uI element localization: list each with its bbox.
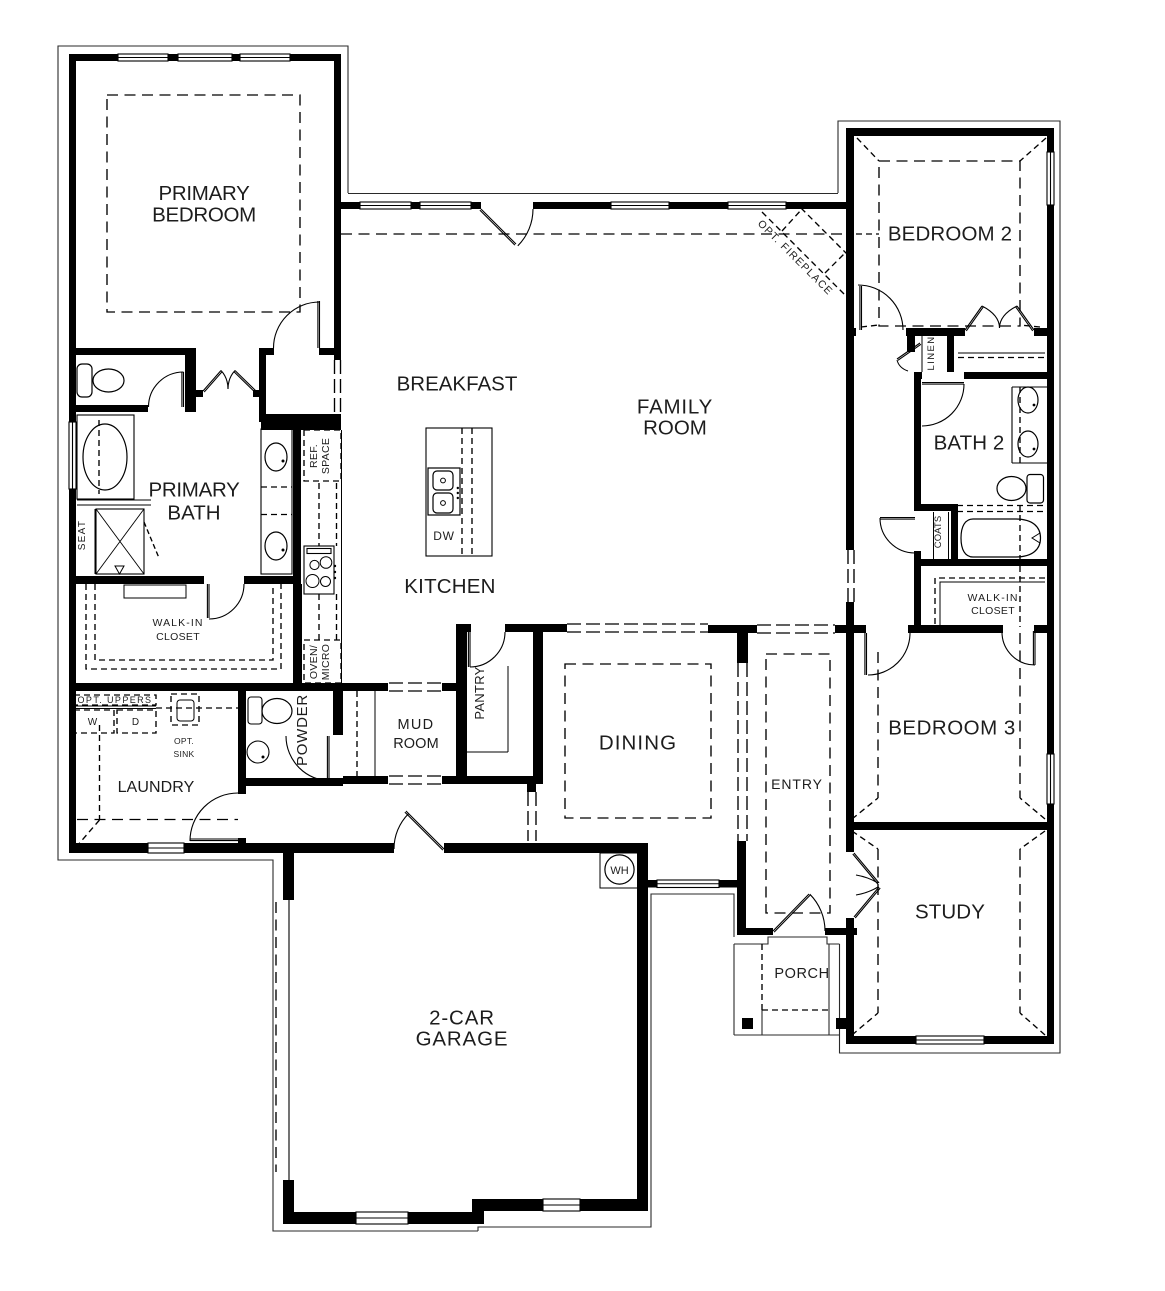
svg-text:BEDROOM: BEDROOM <box>152 204 256 227</box>
svg-text:LAUNDRY: LAUNDRY <box>118 779 195 796</box>
svg-text:PANTRY: PANTRY <box>472 666 487 719</box>
svg-text:COATS: COATS <box>933 516 944 549</box>
svg-text:GARAGE: GARAGE <box>416 1028 509 1051</box>
svg-text:OPT. UPPERS: OPT. UPPERS <box>78 695 153 705</box>
svg-text:2-CAR: 2-CAR <box>429 1007 495 1030</box>
svg-text:BEDROOM 3: BEDROOM 3 <box>888 717 1016 740</box>
svg-text:ENTRY: ENTRY <box>771 776 823 792</box>
svg-text:SPACE: SPACE <box>320 438 332 474</box>
svg-text:BATH 2: BATH 2 <box>934 432 1005 455</box>
svg-text:WALK-IN: WALK-IN <box>967 592 1018 604</box>
svg-text:LINEN: LINEN <box>926 336 937 371</box>
svg-text:WALK-IN: WALK-IN <box>152 617 203 629</box>
svg-text:D: D <box>132 717 140 728</box>
svg-text:FAMILY: FAMILY <box>637 396 713 419</box>
svg-text:W: W <box>88 717 98 728</box>
svg-text:MICRO: MICRO <box>320 644 332 681</box>
svg-text:OVEN/: OVEN/ <box>308 645 320 679</box>
svg-text:BEDROOM 2: BEDROOM 2 <box>888 223 1012 246</box>
svg-text:SINK: SINK <box>173 749 194 759</box>
svg-text:OPT.: OPT. <box>174 736 194 746</box>
svg-text:BATH: BATH <box>167 502 220 525</box>
svg-text:PORCH: PORCH <box>774 966 829 982</box>
svg-text:DINING: DINING <box>599 732 677 755</box>
svg-text:POWDER: POWDER <box>294 694 311 766</box>
svg-text:CLOSET: CLOSET <box>971 605 1015 617</box>
svg-text:MUD: MUD <box>398 717 435 733</box>
svg-text:DW: DW <box>433 529 455 543</box>
svg-text:STUDY: STUDY <box>915 901 985 924</box>
svg-text:SEAT: SEAT <box>77 520 88 551</box>
svg-text:PRIMARY: PRIMARY <box>159 182 251 205</box>
svg-text:PRIMARY: PRIMARY <box>149 479 241 502</box>
svg-text:REF.: REF. <box>308 444 320 468</box>
svg-text:BREAKFAST: BREAKFAST <box>397 373 518 396</box>
svg-text:ROOM: ROOM <box>393 736 439 752</box>
svg-text:ROOM: ROOM <box>643 417 707 440</box>
svg-text:WH: WH <box>610 865 628 877</box>
svg-text:KITCHEN: KITCHEN <box>404 575 495 598</box>
svg-text:CLOSET: CLOSET <box>156 631 200 643</box>
